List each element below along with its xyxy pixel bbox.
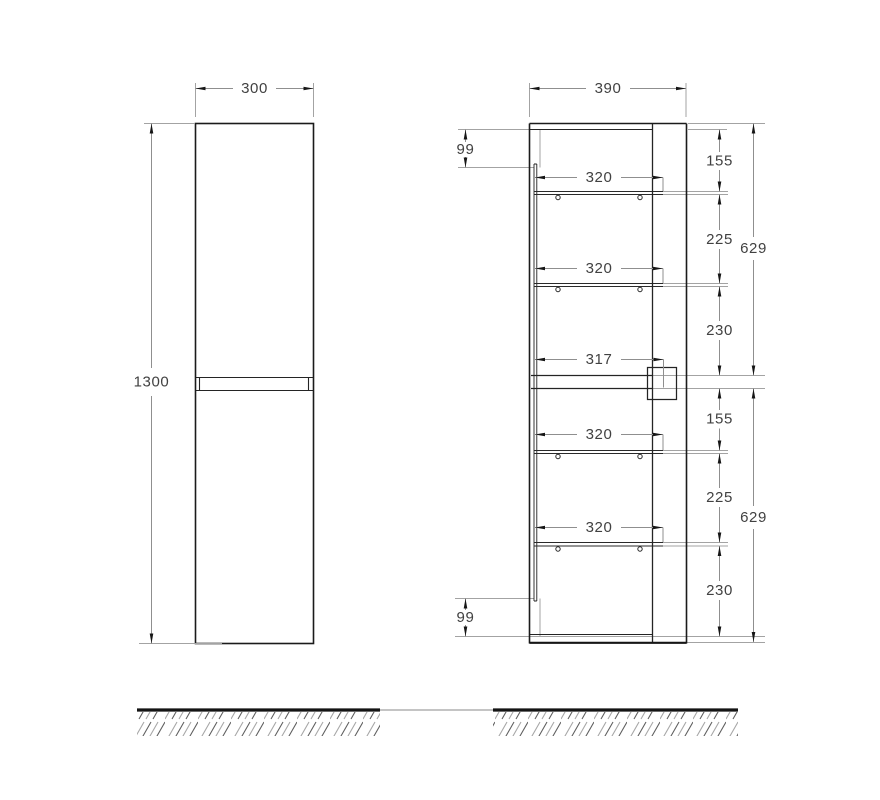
dimension-inner-225-top: 225 bbox=[706, 195, 733, 284]
dim-label-shelf-depth: 320 bbox=[586, 519, 613, 536]
ground bbox=[137, 710, 738, 736]
dim-label-inner: 230 bbox=[706, 582, 733, 599]
ground-hatch-left bbox=[137, 712, 380, 736]
dimension-back-offset-top: 99 bbox=[457, 130, 475, 168]
dim-label-half-height: 629 bbox=[740, 240, 767, 257]
dim-label-half-height: 629 bbox=[740, 509, 767, 526]
front-cabinet-outline bbox=[196, 124, 314, 644]
shelf-2 bbox=[534, 284, 663, 287]
dimension-shelf-depth-4: 320 bbox=[535, 519, 663, 542]
dimension-half-height-bottom: 629 bbox=[740, 389, 767, 643]
shelf-pin bbox=[638, 454, 642, 458]
dim-label-front-width: 300 bbox=[241, 80, 268, 97]
shelf-pin bbox=[556, 287, 560, 291]
side-cabinet-outline bbox=[530, 124, 687, 644]
dim-label-inner: 230 bbox=[706, 322, 733, 339]
shelf-pin bbox=[556, 454, 560, 458]
dim-label-inner: 155 bbox=[706, 153, 733, 170]
cabinet-technical-drawing: 300 1300 bbox=[0, 0, 880, 800]
dim-label-shelf-depth: 320 bbox=[586, 260, 613, 277]
fixed-shelf bbox=[531, 376, 652, 389]
dimension-back-offset-bottom: 99 bbox=[457, 599, 475, 637]
dim-label-side-depth: 390 bbox=[595, 80, 622, 97]
dimension-fixed-shelf-depth: 317 bbox=[535, 351, 664, 368]
dim-label-inner: 225 bbox=[706, 231, 733, 248]
dimension-half-height-top: 629 bbox=[740, 124, 767, 376]
dim-label-front-height: 1300 bbox=[134, 374, 170, 391]
dimension-side-depth: 390 bbox=[530, 80, 687, 117]
dimension-front-height: 1300 bbox=[134, 124, 222, 644]
side-view: 390 99 99 320 320 3 bbox=[455, 80, 767, 644]
dimension-inner-225-bottom: 225 bbox=[706, 454, 733, 543]
front-divider-band bbox=[196, 378, 313, 391]
fixed-shelf-extensions bbox=[653, 376, 766, 389]
dimension-shelf-depth-1: 320 bbox=[535, 169, 663, 191]
shelf-3 bbox=[534, 451, 663, 454]
shelf-4 bbox=[534, 543, 663, 547]
dim-label-fixed-shelf-depth: 317 bbox=[586, 351, 613, 368]
shelf-1 bbox=[534, 192, 663, 195]
dim-label-inner: 225 bbox=[706, 489, 733, 506]
dim-label-back-offset-top: 99 bbox=[457, 141, 475, 158]
front-view: 300 1300 bbox=[134, 80, 314, 644]
cabinet-drawing-page: 300 1300 bbox=[0, 0, 880, 800]
dimension-inner-230-top: 230 bbox=[706, 287, 733, 376]
dimension-front-width: 300 bbox=[196, 80, 314, 117]
shelf-pin bbox=[638, 195, 642, 199]
dimension-inner-155-bottom: 155 bbox=[706, 389, 733, 451]
shelf-pin bbox=[556, 547, 560, 551]
shelf-pin bbox=[556, 195, 560, 199]
dim-label-inner: 155 bbox=[706, 411, 733, 428]
dim-label-shelf-depth: 320 bbox=[586, 426, 613, 443]
ground-hatch-right bbox=[493, 712, 738, 736]
dim-label-shelf-depth: 320 bbox=[586, 169, 613, 186]
dim-label-back-offset-bottom: 99 bbox=[457, 609, 475, 626]
back-panel bbox=[534, 164, 537, 601]
dimension-shelf-depth-2: 320 bbox=[535, 260, 663, 283]
shelf-pin bbox=[638, 547, 642, 551]
dimension-shelf-depth-3: 320 bbox=[535, 426, 663, 450]
dimension-inner-230-bottom: 230 bbox=[706, 546, 733, 637]
shelf-pin bbox=[638, 287, 642, 291]
dimension-inner-155-top: 155 bbox=[706, 130, 733, 192]
